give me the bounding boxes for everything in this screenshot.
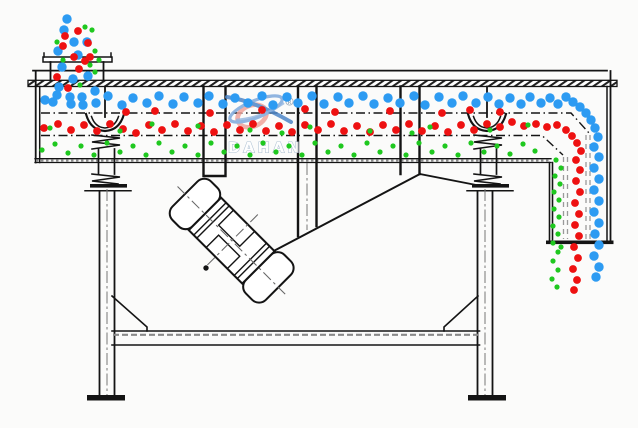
fine_green-particle xyxy=(130,143,135,148)
fine_green-particle xyxy=(77,82,82,87)
fine_green-particle xyxy=(247,152,252,157)
fine_green-particle xyxy=(182,143,187,148)
medium_red-particle xyxy=(572,156,580,164)
fine_green-particle xyxy=(60,57,65,62)
fine_green-particle xyxy=(87,62,92,67)
fine_green-particle xyxy=(550,223,555,228)
medium_red-particle xyxy=(184,127,192,135)
coarse_blue-particle xyxy=(66,99,75,108)
coarse_blue-particle xyxy=(57,62,66,71)
vibrating-screen-diagram: R DAHAN xyxy=(0,0,638,428)
coarse_blue-particle xyxy=(525,92,534,101)
coarse_blue-particle xyxy=(409,91,418,100)
medium_red-particle xyxy=(576,188,584,196)
fine_green-particle xyxy=(403,152,408,157)
medium_red-particle xyxy=(570,286,578,294)
fine_green-particle xyxy=(279,130,284,135)
coarse_blue-particle xyxy=(591,272,600,281)
top-cover xyxy=(28,71,617,87)
coarse_blue-particle xyxy=(142,98,151,107)
fine_green-particle xyxy=(555,231,560,236)
medium_red-particle xyxy=(132,129,140,137)
fine_green-particle xyxy=(247,127,252,132)
medium_red-particle xyxy=(236,126,244,134)
coarse_blue-particle xyxy=(168,99,177,108)
coarse_blue-particle xyxy=(594,152,603,161)
coarse_blue-particle xyxy=(68,74,77,83)
coarse_blue-particle xyxy=(594,262,603,271)
fine_green-particle xyxy=(91,152,96,157)
medium_red-particle xyxy=(575,232,583,240)
fine_green-particle xyxy=(117,128,122,133)
fine_green-particle xyxy=(92,69,97,74)
coarse_blue-particle xyxy=(204,91,213,100)
coarse_blue-particle xyxy=(589,185,598,194)
coarse_blue-particle xyxy=(590,123,599,132)
foot-pad-left xyxy=(87,395,125,401)
medium_red-particle xyxy=(496,123,504,131)
coarse_blue-particle xyxy=(282,92,291,101)
coarse_blue-particle xyxy=(293,98,302,107)
coarse_blue-particle xyxy=(594,174,603,183)
foot-pad-right xyxy=(468,395,506,401)
medium_red-particle xyxy=(466,106,474,114)
fine_green-particle xyxy=(169,149,174,154)
medium_red-particle xyxy=(223,121,231,129)
fine_green-particle xyxy=(390,143,395,148)
coarse_blue-particle xyxy=(78,100,87,109)
fine_green-particle xyxy=(104,140,109,145)
medium_red-particle xyxy=(483,120,491,128)
medium_red-particle xyxy=(553,121,561,129)
fine_green-particle xyxy=(427,124,432,129)
medium_red-particle xyxy=(331,108,339,116)
fine_green-particle xyxy=(416,140,421,145)
coarse_blue-particle xyxy=(369,99,378,108)
medium_red-particle xyxy=(470,126,478,134)
coarse_blue-particle xyxy=(395,98,404,107)
fine_green-particle xyxy=(442,143,447,148)
fine_green-particle xyxy=(325,149,330,154)
chute-divider-1 xyxy=(586,135,590,239)
medium_red-particle xyxy=(106,120,114,128)
medium_red-particle xyxy=(532,120,540,128)
coarse_blue-particle xyxy=(319,99,328,108)
fine_green-particle xyxy=(377,149,382,154)
motor-bolt xyxy=(203,265,208,270)
fine_green-particle xyxy=(299,152,304,157)
coarse_blue-particle xyxy=(193,98,202,107)
medium_red-particle xyxy=(392,126,400,134)
coarse_blue-particle xyxy=(589,142,598,151)
coarse_blue-particle xyxy=(179,92,188,101)
coarse_blue-particle xyxy=(483,92,492,101)
fine_green-particle xyxy=(338,143,343,148)
medium_red-particle xyxy=(80,121,88,129)
fine_green-particle xyxy=(92,48,97,53)
coarse_blue-particle xyxy=(590,229,599,238)
medium_red-particle xyxy=(327,120,335,128)
medium_red-particle xyxy=(301,105,309,113)
fine_green-particle xyxy=(550,258,555,263)
fine_green-particle xyxy=(481,149,486,154)
fine_green-particle xyxy=(507,151,512,156)
coarse_blue-particle xyxy=(103,91,112,100)
lid-flange-band xyxy=(28,80,617,86)
mount-brace xyxy=(420,174,481,186)
coarse_blue-particle xyxy=(257,91,266,100)
fine_green-particle xyxy=(551,189,556,194)
medium_red-particle xyxy=(571,199,579,207)
chute-left-wall xyxy=(550,163,553,241)
medium_red-particle xyxy=(171,120,179,128)
coarse_blue-particle xyxy=(90,86,99,95)
fine_green-particle xyxy=(82,24,87,29)
fine_green-particle xyxy=(195,152,200,157)
medium_red-particle xyxy=(75,65,83,73)
chute-divider-2 xyxy=(564,157,568,239)
fine_green-particle xyxy=(549,276,554,281)
fine_green-particle xyxy=(78,143,83,148)
coarse_blue-particle xyxy=(494,99,503,108)
fine_green-particle xyxy=(557,181,562,186)
coarse_blue-particle xyxy=(40,95,49,104)
medium_red-particle xyxy=(40,124,48,132)
coarse_blue-particle xyxy=(307,91,316,100)
coarse_blue-particle xyxy=(128,93,137,102)
fine_green-particle xyxy=(149,121,154,126)
medium_red-particle xyxy=(496,108,504,116)
medium_red-particle xyxy=(574,254,582,262)
medium_red-particle xyxy=(543,123,551,131)
fine_green-particle xyxy=(221,149,226,154)
coarse_blue-particle xyxy=(594,196,603,205)
coarse_blue-particle xyxy=(420,100,429,109)
fine_green-particle xyxy=(555,249,560,254)
medium_red-particle xyxy=(206,109,214,117)
coarse_blue-particle xyxy=(77,92,86,101)
medium_red-particle xyxy=(573,139,581,147)
medium_red-particle xyxy=(151,107,159,115)
fine_green-particle xyxy=(550,240,555,245)
particles-layer xyxy=(39,14,603,294)
medium_red-particle xyxy=(577,147,585,155)
medium_red-particle xyxy=(74,27,82,35)
coarse_blue-particle xyxy=(54,82,63,91)
fine_green-particle xyxy=(364,140,369,145)
screen-box xyxy=(35,71,611,241)
fine_green-particle xyxy=(551,206,556,211)
coarse_blue-particle xyxy=(268,100,277,109)
fine_green-particle xyxy=(520,141,525,146)
coarse_blue-particle xyxy=(594,240,603,249)
coarse_blue-particle xyxy=(589,163,598,172)
medium_red-particle xyxy=(53,73,61,81)
medium_red-particle xyxy=(405,120,413,128)
coarse_blue-particle xyxy=(91,98,100,107)
fine_green-particle xyxy=(273,149,278,154)
medium_red-particle xyxy=(340,127,348,135)
coarse_blue-particle xyxy=(447,98,456,107)
base-beam xyxy=(112,331,480,345)
gusset-left xyxy=(112,296,147,331)
coarse_blue-particle xyxy=(545,93,554,102)
medium_red-particle xyxy=(438,109,446,117)
coarse_blue-particle xyxy=(62,14,71,23)
medium_red-particle xyxy=(288,128,296,136)
coarse_blue-particle xyxy=(243,98,252,107)
fine_green-particle xyxy=(54,39,59,44)
medium_red-particle xyxy=(275,122,283,130)
coarse_blue-particle xyxy=(52,90,61,99)
fine_green-particle xyxy=(117,149,122,154)
fine_green-particle xyxy=(143,152,148,157)
coarse_blue-particle xyxy=(458,91,467,100)
medium_red-particle xyxy=(457,121,465,129)
coarse_blue-particle xyxy=(589,251,598,260)
fine_green-particle xyxy=(286,143,291,148)
particles-fine_green xyxy=(39,24,563,289)
fine_green-particle xyxy=(195,123,200,128)
medium_red-particle xyxy=(210,128,218,136)
medium_red-particle xyxy=(562,126,570,134)
medium_red-particle xyxy=(576,166,584,174)
medium_red-particle xyxy=(249,120,257,128)
medium_red-particle xyxy=(573,276,581,284)
coarse_blue-particle xyxy=(594,218,603,227)
medium_red-particle xyxy=(386,107,394,115)
coarse_blue-particle xyxy=(383,93,392,102)
medium_red-particle xyxy=(444,128,452,136)
fine_green-particle xyxy=(89,27,94,32)
fine_green-particle xyxy=(558,165,563,170)
medium_red-particle xyxy=(569,265,577,273)
coarse_blue-particle xyxy=(83,71,92,80)
fine_green-particle xyxy=(556,214,561,219)
medium_red-particle xyxy=(54,120,62,128)
fine_green-particle xyxy=(553,157,558,162)
medium_red-particle xyxy=(262,127,270,135)
particles-coarse_blue xyxy=(40,14,603,281)
coarse_blue-particle xyxy=(593,132,602,141)
coarse_blue-particle xyxy=(154,91,163,100)
fine_green-particle xyxy=(487,127,492,132)
medium_red-particle xyxy=(379,121,387,129)
fine_green-particle xyxy=(47,125,52,130)
medium_red-particle xyxy=(67,126,75,134)
medium_red-particle xyxy=(70,53,78,61)
coarse_blue-particle xyxy=(586,115,595,124)
coarse_blue-particle xyxy=(69,37,78,46)
fine_green-particle xyxy=(156,140,161,145)
fine_green-particle xyxy=(307,124,312,129)
medium_red-particle xyxy=(122,108,130,116)
fine_green-particle xyxy=(532,148,537,153)
gusset-right xyxy=(444,296,478,331)
fine_green-particle xyxy=(494,143,499,148)
coarse_blue-particle xyxy=(536,98,545,107)
screenshot-canvas: R DAHAN xyxy=(0,0,638,428)
medium_red-particle xyxy=(64,84,72,92)
medium_red-particle xyxy=(93,127,101,135)
medium_red-particle xyxy=(61,32,69,40)
motor-mount-beam xyxy=(268,174,420,254)
medium_red-particle xyxy=(314,126,322,134)
coarse_blue-particle xyxy=(333,92,342,101)
fine_green-particle xyxy=(52,141,57,146)
coarse_blue-particle xyxy=(553,99,562,108)
coarse_blue-particle xyxy=(218,99,227,108)
coarse_blue-particle xyxy=(589,207,598,216)
fine_green-particle xyxy=(260,140,265,145)
fine_green-particle xyxy=(525,122,530,127)
fine_green-particle xyxy=(234,143,239,148)
medium_red-particle xyxy=(570,243,578,251)
medium_red-particle xyxy=(571,221,579,229)
medium_red-particle xyxy=(158,126,166,134)
fine_green-particle xyxy=(429,149,434,154)
fine_green-particle xyxy=(65,150,70,155)
fine_green-particle xyxy=(367,128,372,133)
medium_red-particle xyxy=(84,39,92,47)
motor-mount-frame xyxy=(268,174,481,254)
coarse_blue-particle xyxy=(471,98,480,107)
coarse_blue-particle xyxy=(344,98,353,107)
fine_green-particle xyxy=(208,140,213,145)
medium_red-particle xyxy=(508,118,516,126)
coarse_blue-particle xyxy=(434,92,443,101)
coarse_blue-particle xyxy=(505,93,514,102)
fine_green-particle xyxy=(455,152,460,157)
fine_green-particle xyxy=(39,147,44,152)
medium_red-particle xyxy=(575,210,583,218)
coarse_blue-particle xyxy=(358,91,367,100)
medium_red-particle xyxy=(258,106,266,114)
fine_green-particle xyxy=(312,140,317,145)
medium_red-particle xyxy=(86,53,94,61)
fine_green-particle xyxy=(468,140,473,145)
support-frame xyxy=(87,189,506,401)
fine_green-particle xyxy=(558,244,563,249)
coarse_blue-particle xyxy=(230,93,239,102)
medium_red-particle xyxy=(418,127,426,135)
fine_green-particle xyxy=(351,152,356,157)
fine_green-particle xyxy=(556,197,561,202)
fine_green-particle xyxy=(552,173,557,178)
coarse_blue-particle xyxy=(516,99,525,108)
medium_red-particle xyxy=(59,42,67,50)
fine_green-particle xyxy=(409,130,414,135)
fine_green-particle xyxy=(96,57,101,62)
fine_green-particle xyxy=(555,267,560,272)
medium_red-particle xyxy=(353,122,361,130)
vibration-motor xyxy=(151,160,312,321)
fine_green-particle xyxy=(554,284,559,289)
medium_red-particle xyxy=(572,177,580,185)
medium_red-particle xyxy=(568,132,576,140)
